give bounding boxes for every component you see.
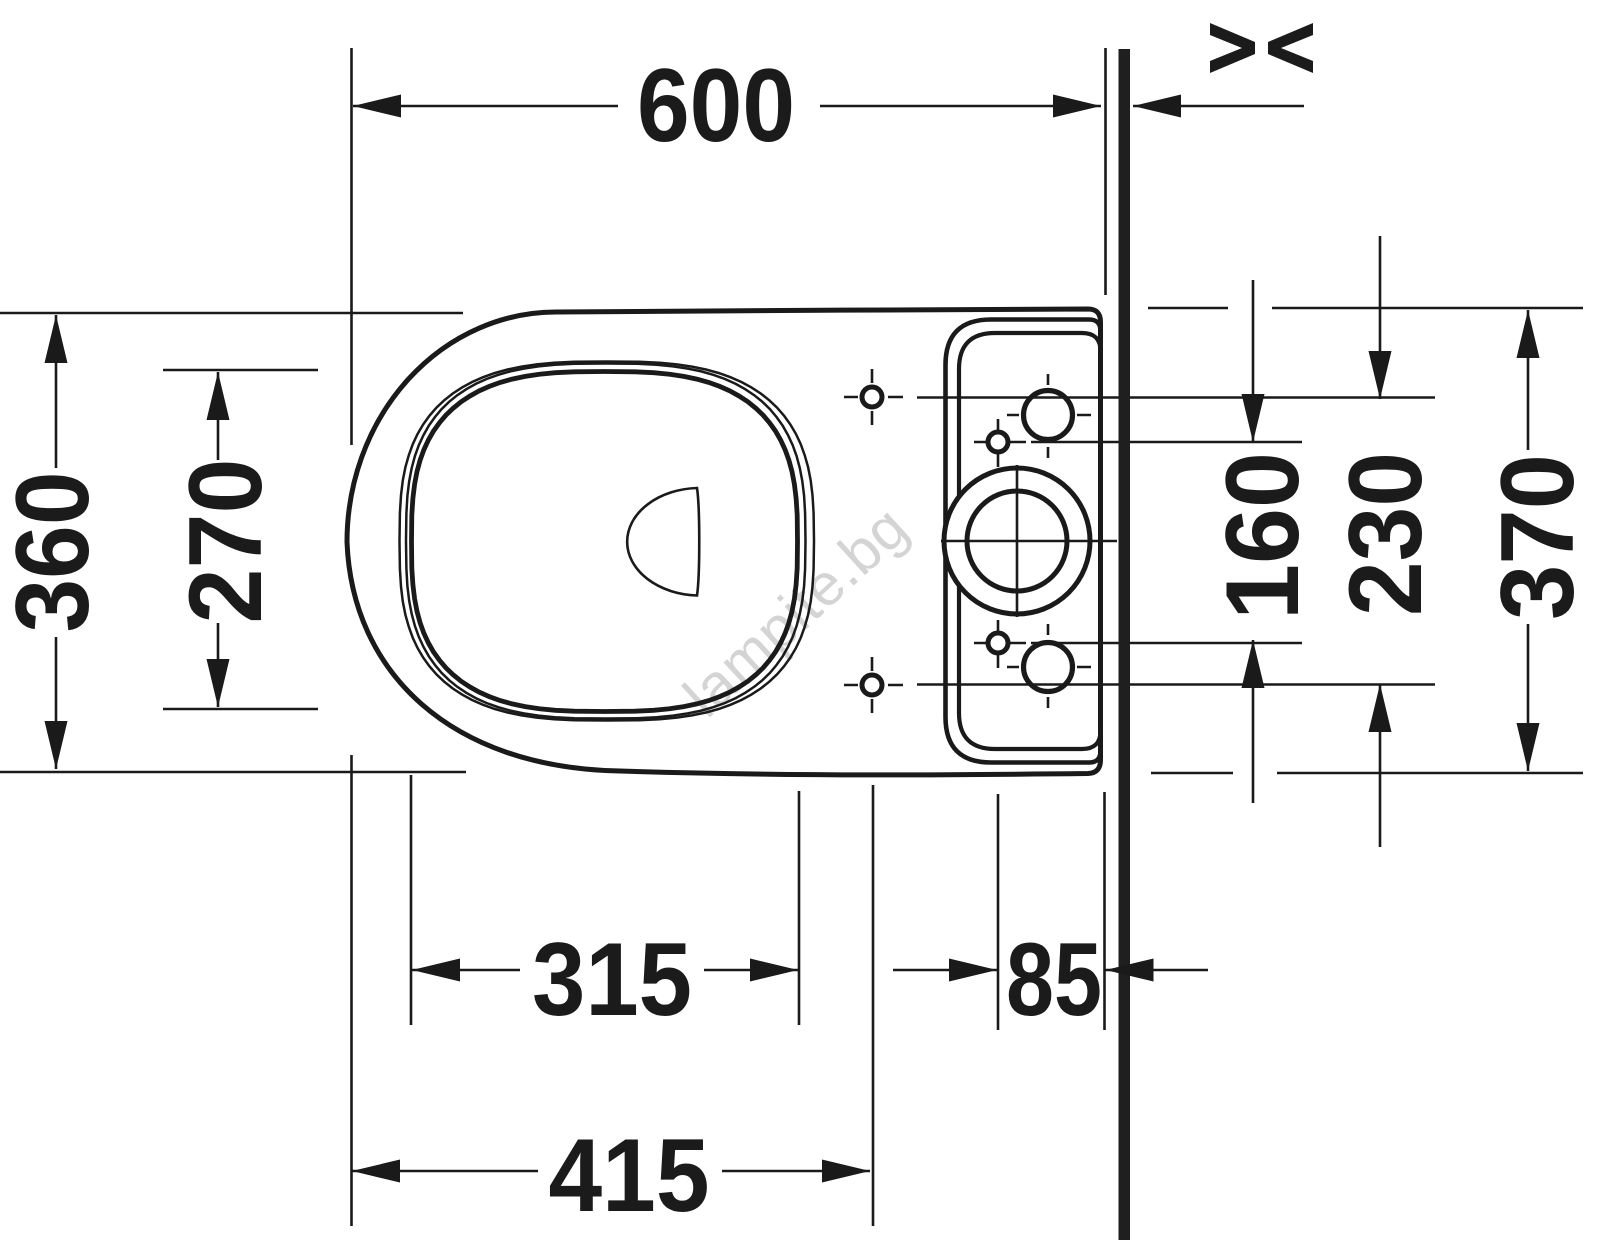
svg-text:370: 370 — [1480, 454, 1596, 620]
svg-text:600: 600 — [637, 48, 795, 164]
svg-text:360: 360 — [0, 472, 111, 633]
svg-text:160: 160 — [1205, 452, 1321, 620]
svg-text:315: 315 — [532, 922, 692, 1038]
svg-text:270: 270 — [168, 459, 284, 624]
svg-text:415: 415 — [549, 1118, 710, 1234]
svg-text:230: 230 — [1328, 452, 1444, 616]
svg-text:85: 85 — [1006, 922, 1102, 1038]
